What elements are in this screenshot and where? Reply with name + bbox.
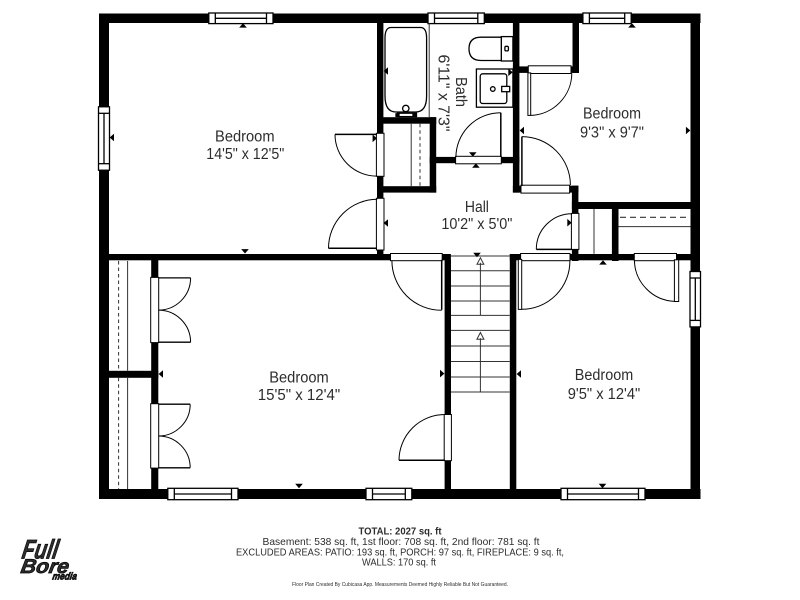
- svg-text:6'11" x 7'3": 6'11" x 7'3": [434, 55, 451, 132]
- svg-text:Floor Plan Created By Cubicasa: Floor Plan Created By Cubicasa App. Meas…: [292, 582, 508, 588]
- svg-text:9'3" x 9'7": 9'3" x 9'7": [580, 125, 644, 142]
- svg-text:Bath: Bath: [452, 77, 469, 107]
- svg-text:Bedroom: Bedroom: [583, 106, 641, 123]
- svg-text:Bedroom: Bedroom: [575, 367, 633, 384]
- svg-text:Bedroom: Bedroom: [215, 128, 275, 145]
- svg-text:media: media: [51, 572, 78, 583]
- svg-text:9'5" x 12'4": 9'5" x 12'4": [568, 386, 641, 403]
- svg-text:Hall: Hall: [465, 199, 489, 216]
- svg-text:WALLS: 170 sq. ft: WALLS: 170 sq. ft: [362, 557, 436, 569]
- svg-text:15'5" x 12'4": 15'5" x 12'4": [258, 387, 341, 404]
- svg-text:10'2" x 5'0": 10'2" x 5'0": [441, 216, 512, 233]
- svg-text:14'5" x 12'5": 14'5" x 12'5": [206, 146, 284, 163]
- svg-text:Bedroom: Bedroom: [269, 370, 329, 387]
